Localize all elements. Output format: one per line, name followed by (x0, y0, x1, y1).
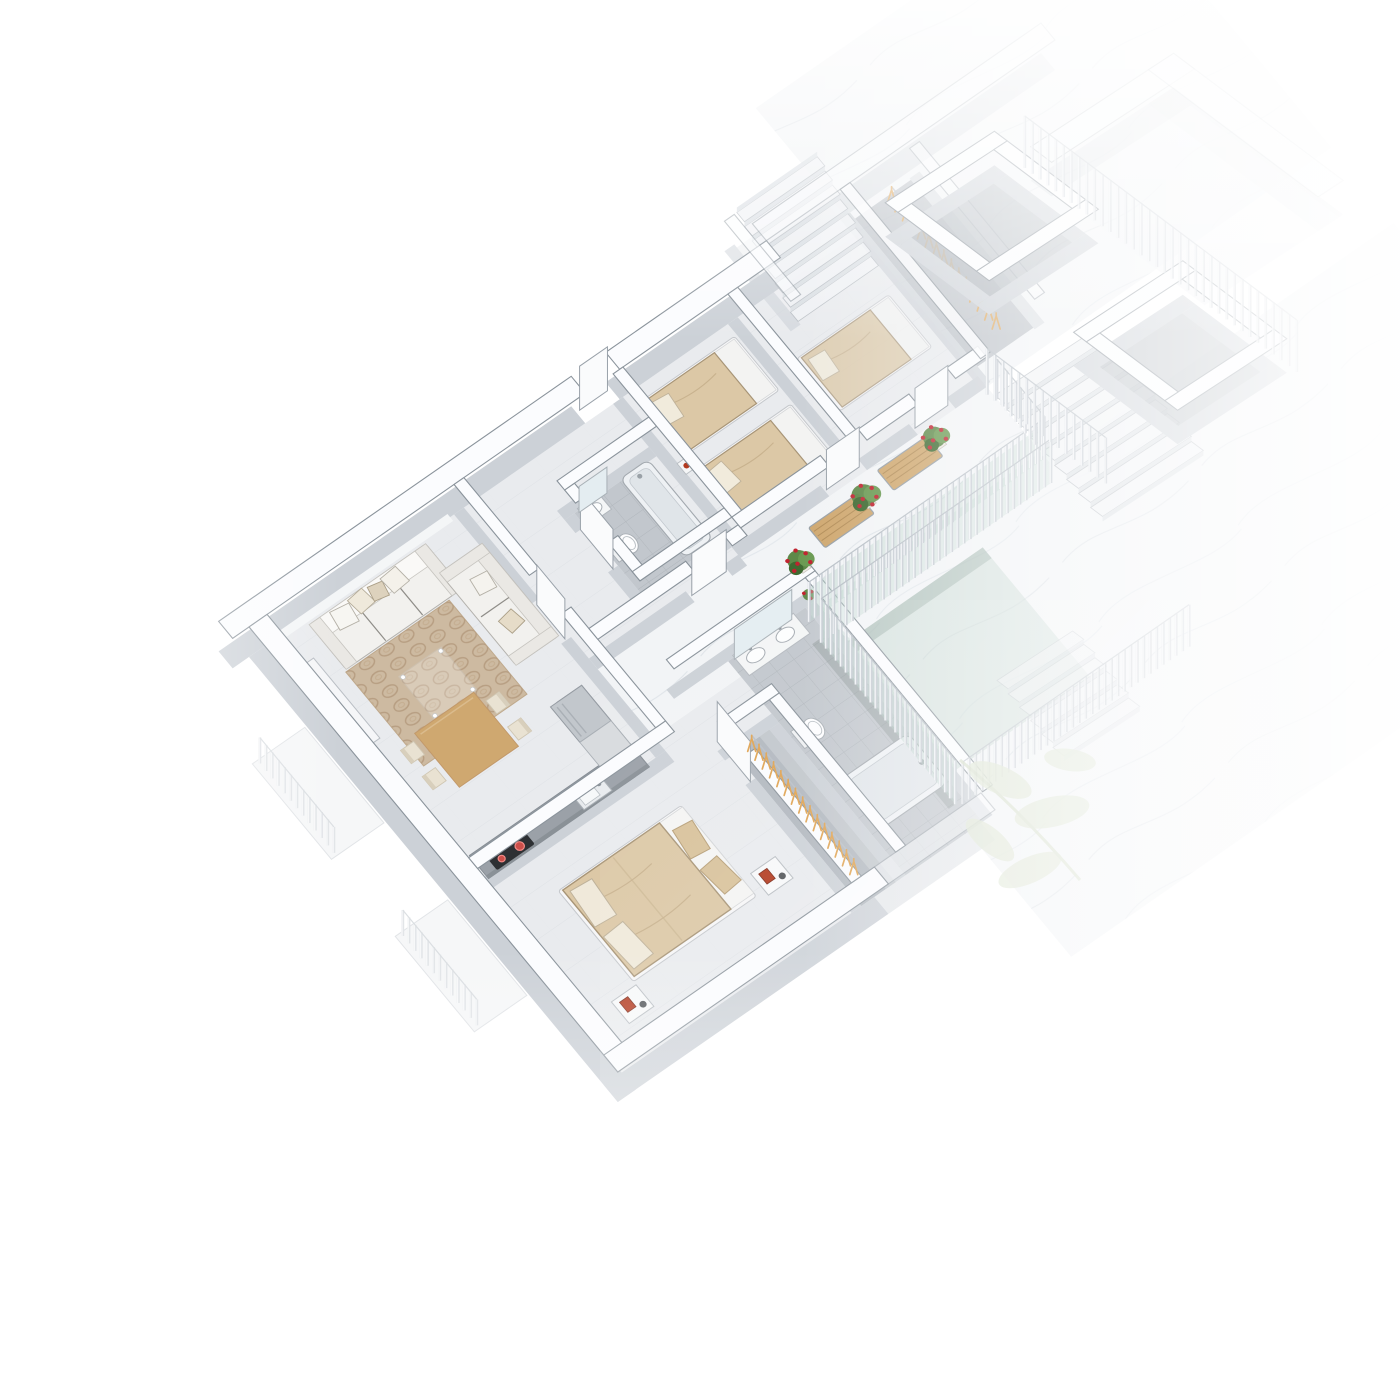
edge-fades (0, 0, 1400, 1400)
isometric-scene (0, 0, 1400, 1400)
floor-plan-render (0, 0, 1400, 1400)
